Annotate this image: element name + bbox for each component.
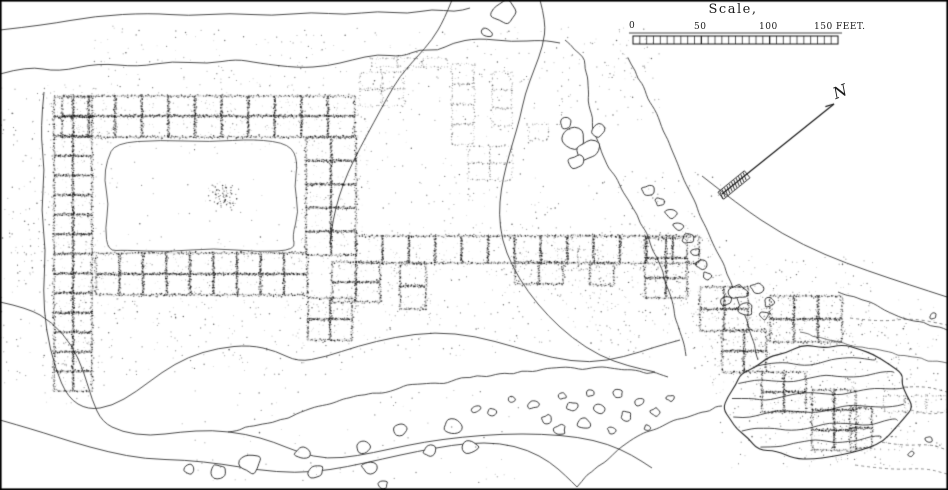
scale-tick-150: 150 FEET. [814,22,865,32]
scale-tick-0: 0 [629,21,635,31]
map-sheet: Scale, 0 50 100 150 FEET. N [0,0,948,490]
scale-tick-100: 100 [759,22,778,32]
map-canvas [0,0,948,490]
scale-tick-50: 50 [694,22,706,32]
scale-bar-title: Scale, [668,2,798,17]
